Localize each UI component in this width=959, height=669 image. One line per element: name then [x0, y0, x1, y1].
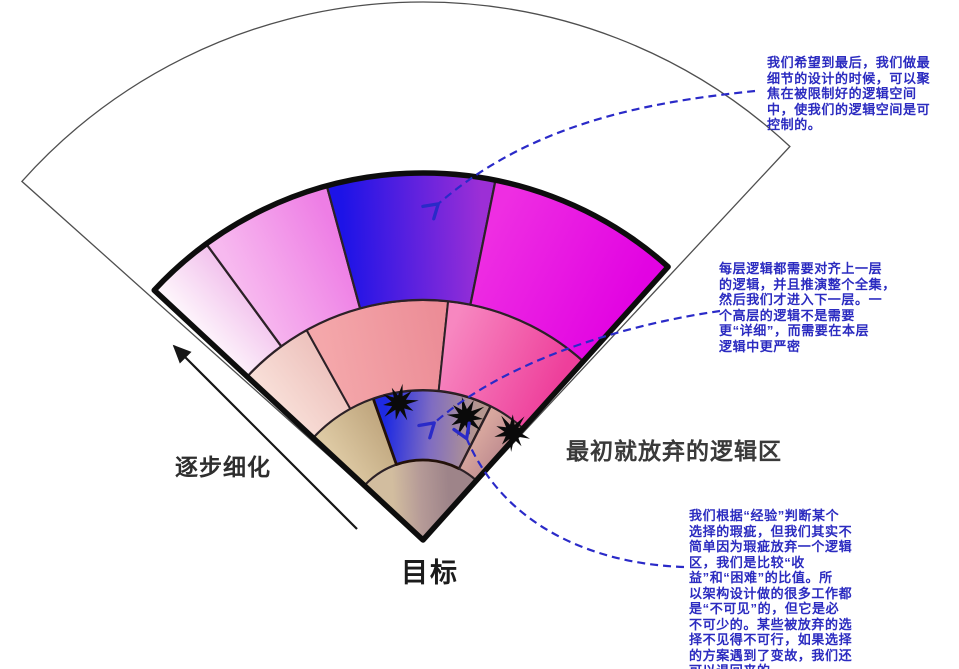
diagram-canvas: 我们希望到最后，我们做最 细节的设计的时候，可以聚 焦在被限制好的逻辑空间 中，…	[0, 0, 959, 669]
annotation-layer-alignment: 每层逻辑都需要对齐上一层 的逻辑，并且推演整个全集， 然后我们才进入下一层。一 …	[719, 261, 905, 354]
goal-label: 目标	[401, 551, 459, 590]
abandoned-logic-area-label: 最初就放弃的逻辑区	[566, 432, 782, 466]
stepwise-refinement-label: 逐步细化	[175, 448, 271, 482]
annotation-experience-tradeoff: 我们根据“经验”判断某个 选择的瑕疵，但我们其实不 简单因为瑕疵放弃一个逻辑 区…	[689, 508, 875, 669]
annotation-controllable-logic-space: 我们希望到最后，我们做最 细节的设计的时候，可以聚 焦在被限制好的逻辑空间 中，…	[767, 55, 949, 133]
